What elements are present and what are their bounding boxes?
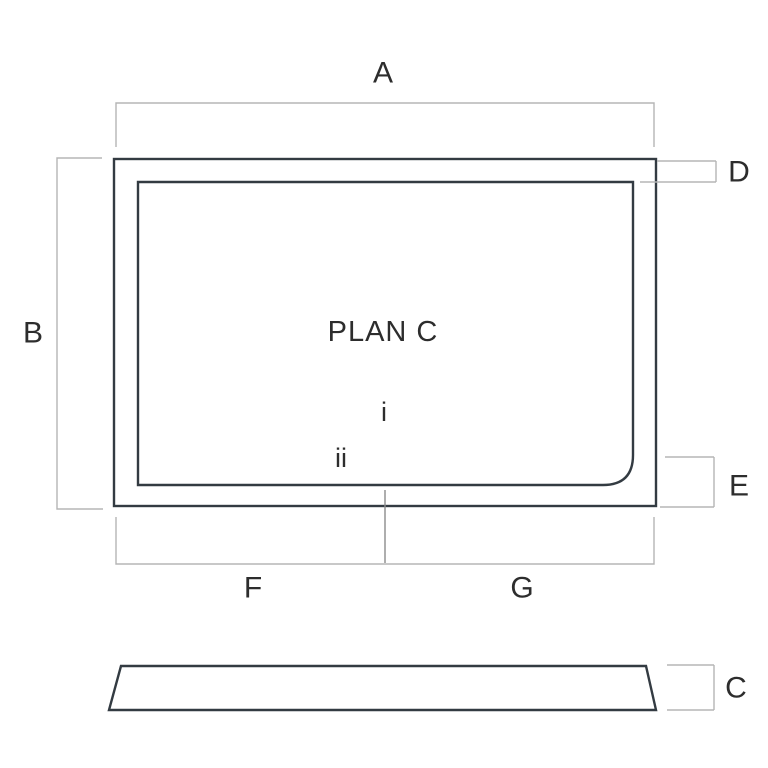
shower-tray-diagram: A B D E F G C PLAN C i ii — [0, 0, 768, 768]
plan-title: PLAN C — [328, 316, 439, 348]
dimension-e-bracket — [660, 457, 714, 507]
marker-i-label: i — [381, 397, 387, 427]
marker-ii-label: ii — [335, 443, 347, 473]
drain-circle — [368, 441, 402, 475]
dimension-c-bracket — [667, 665, 714, 710]
dimension-f-label: F — [244, 572, 262, 605]
dimension-b-label: B — [23, 317, 43, 350]
dimension-d-label: D — [728, 156, 750, 189]
tray-side-profile — [109, 666, 656, 710]
dimension-a-label: A — [373, 57, 393, 90]
dimension-c-label: C — [725, 672, 747, 705]
dimension-e-label: E — [729, 470, 749, 503]
dimension-d-bracket — [640, 161, 716, 182]
shower-tray-diagram-page: A B D E F G C PLAN C i ii — [0, 0, 768, 768]
dimension-a-bracket — [116, 103, 654, 147]
dimension-g-label: G — [510, 572, 533, 605]
dimension-b-bracket — [57, 158, 103, 509]
